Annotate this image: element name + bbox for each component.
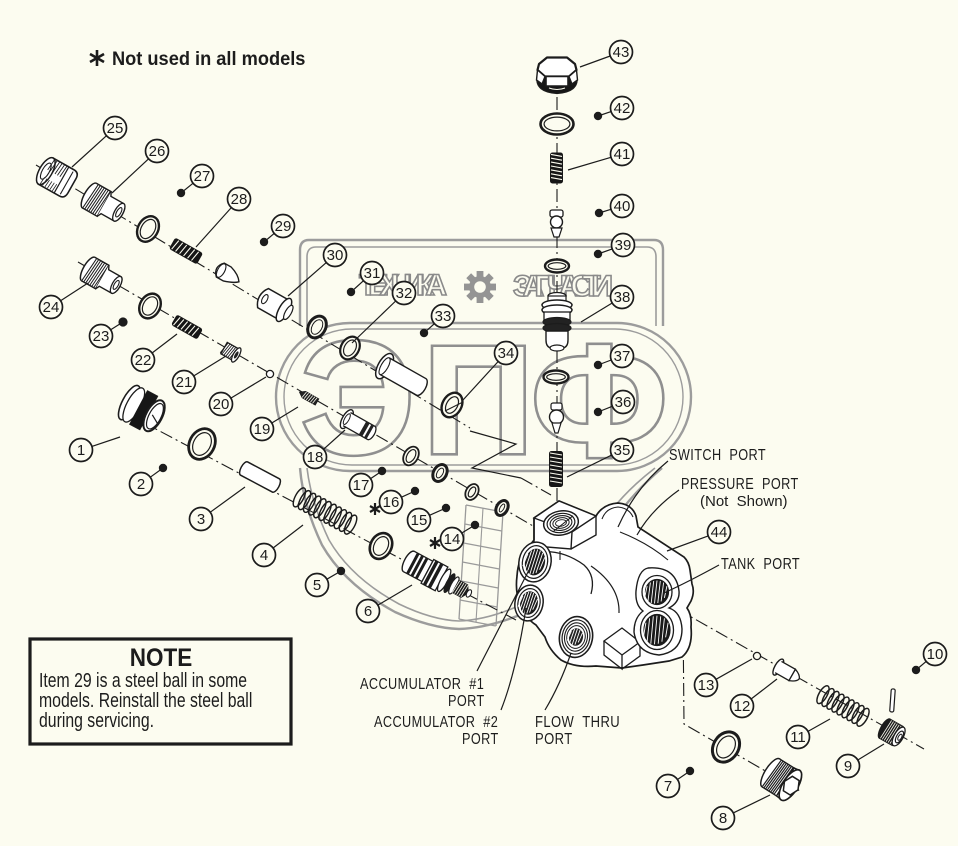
svg-text:32: 32 bbox=[396, 285, 413, 302]
svg-text:4: 4 bbox=[260, 547, 268, 564]
svg-text:38: 38 bbox=[614, 289, 631, 306]
svg-text:23: 23 bbox=[93, 328, 110, 345]
svg-text:18: 18 bbox=[307, 449, 324, 466]
svg-text:6: 6 bbox=[364, 603, 372, 620]
svg-text:7: 7 bbox=[664, 778, 672, 795]
svg-text:40: 40 bbox=[614, 198, 631, 215]
svg-text:36: 36 bbox=[615, 394, 632, 411]
svg-text:41: 41 bbox=[614, 146, 631, 163]
svg-text:2: 2 bbox=[137, 476, 145, 493]
svg-text:PRESSURE PORT: PRESSURE PORT bbox=[681, 476, 799, 493]
svg-text:34: 34 bbox=[498, 345, 515, 362]
svg-text:25: 25 bbox=[107, 120, 124, 137]
svg-text:21: 21 bbox=[176, 374, 193, 391]
svg-text:NOTE: NOTE bbox=[130, 644, 192, 672]
svg-text:17: 17 bbox=[353, 477, 370, 494]
svg-text:TANK PORT: TANK PORT bbox=[721, 556, 800, 573]
svg-text:11: 11 bbox=[790, 729, 806, 746]
svg-text:37: 37 bbox=[614, 348, 631, 365]
svg-text:PORT: PORT bbox=[448, 693, 485, 710]
svg-text:models. Reinstall the steel ba: models. Reinstall the steel ball bbox=[39, 689, 252, 711]
svg-text:22: 22 bbox=[135, 352, 152, 369]
svg-text:44: 44 bbox=[711, 524, 728, 541]
svg-text:43: 43 bbox=[613, 44, 630, 61]
svg-text:16: 16 bbox=[383, 494, 400, 511]
svg-text:33: 33 bbox=[435, 308, 452, 325]
svg-text:Not used in all models: Not used in all models bbox=[112, 48, 305, 69]
svg-text:42: 42 bbox=[614, 100, 631, 117]
svg-text:П: П bbox=[423, 314, 534, 486]
svg-text:FLOW THRU: FLOW THRU bbox=[535, 714, 620, 731]
svg-text:19: 19 bbox=[254, 421, 271, 438]
svg-text:29: 29 bbox=[275, 218, 292, 235]
svg-text:20: 20 bbox=[213, 396, 230, 413]
svg-text:15: 15 bbox=[411, 512, 428, 529]
svg-text:SWITCH PORT: SWITCH PORT bbox=[669, 447, 766, 464]
svg-text:9: 9 bbox=[844, 758, 852, 775]
svg-text:PORT: PORT bbox=[535, 731, 573, 748]
svg-text:ACCUMULATOR #2: ACCUMULATOR #2 bbox=[374, 714, 498, 731]
svg-text:27: 27 bbox=[194, 168, 211, 185]
svg-text:(Not Shown): (Not Shown) bbox=[700, 493, 788, 510]
svg-text:24: 24 bbox=[43, 299, 60, 316]
svg-text:10: 10 bbox=[927, 646, 944, 663]
svg-text:8: 8 bbox=[719, 810, 727, 827]
svg-text:14: 14 bbox=[444, 531, 461, 548]
svg-text:13: 13 bbox=[698, 677, 715, 694]
svg-text:31: 31 bbox=[364, 265, 381, 282]
svg-text:12: 12 bbox=[734, 698, 751, 715]
svg-text:26: 26 bbox=[149, 143, 166, 160]
svg-text:5: 5 bbox=[313, 577, 321, 594]
svg-text:35: 35 bbox=[614, 442, 631, 459]
svg-text:Item 29 is a steel ball in som: Item 29 is a steel ball in some bbox=[39, 669, 247, 691]
svg-text:ACCUMULATOR #1: ACCUMULATOR #1 bbox=[360, 676, 484, 693]
svg-text:39: 39 bbox=[615, 237, 632, 254]
svg-text:PORT: PORT bbox=[462, 731, 499, 748]
svg-text:1: 1 bbox=[77, 442, 85, 459]
svg-text:30: 30 bbox=[327, 247, 344, 264]
svg-text:28: 28 bbox=[231, 191, 248, 208]
svg-text:during servicing.: during servicing. bbox=[39, 709, 154, 731]
svg-text:3: 3 bbox=[197, 511, 205, 528]
